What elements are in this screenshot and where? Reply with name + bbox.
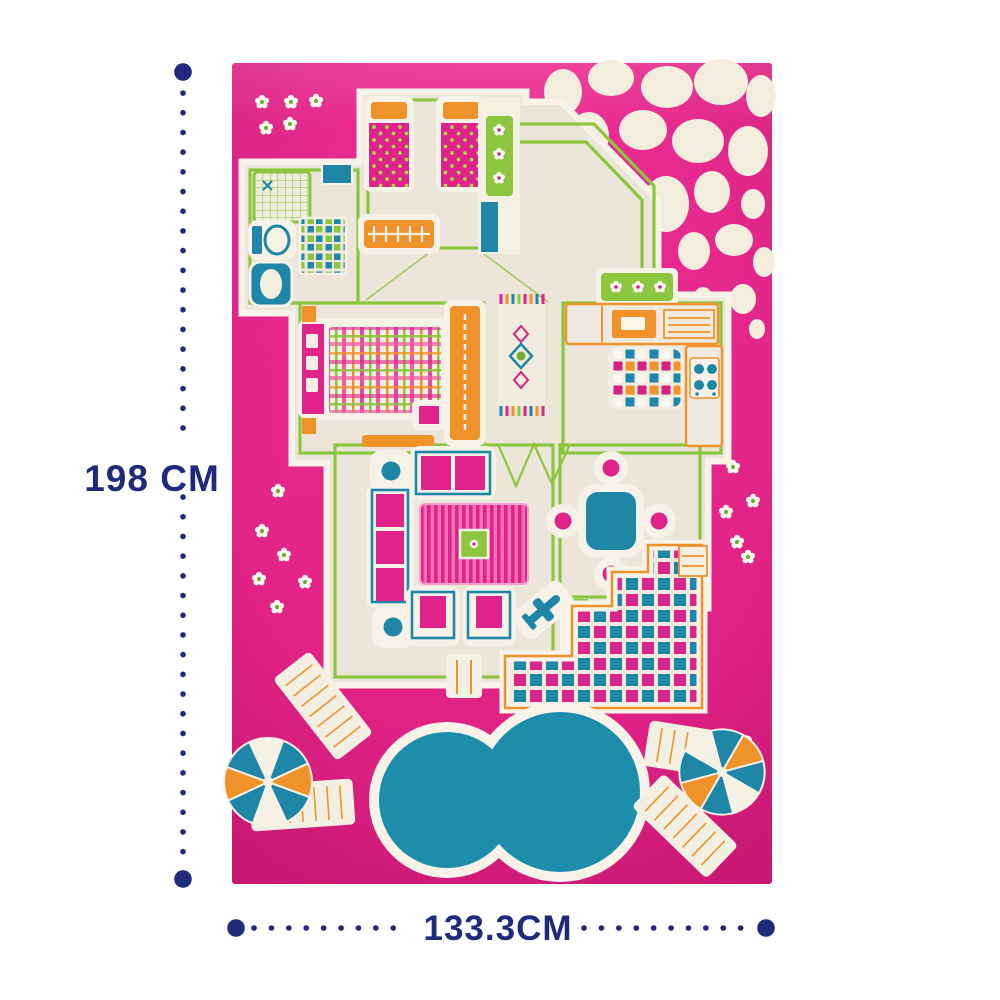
scene: 198 CM 133.3CM	[0, 0, 1000, 1000]
kitchen-rug	[610, 348, 682, 408]
width-measure: 133.3CM	[227, 909, 775, 948]
bench	[358, 214, 440, 254]
stool	[412, 400, 446, 430]
dining-chair	[555, 513, 572, 530]
teal-door	[481, 202, 498, 252]
width-label: 133.3CM	[423, 909, 572, 948]
kids-bedroom	[358, 96, 520, 254]
height-label: 198 CM	[84, 458, 220, 499]
product-dimension-image: 198 CM 133.3CM	[0, 0, 1000, 1000]
bathtub	[250, 262, 292, 306]
living-rug	[420, 504, 528, 584]
sofa	[366, 484, 414, 608]
measure-endpoint-dot	[174, 63, 192, 81]
patio-step-mat	[679, 546, 707, 576]
radiator	[362, 435, 434, 447]
play-house-rug	[212, 59, 776, 884]
window	[322, 164, 352, 184]
bath-mat	[300, 218, 346, 274]
loveseat	[410, 446, 496, 500]
height-measure: 198 CM	[84, 63, 220, 888]
shower	[254, 172, 310, 222]
wardrobe	[444, 300, 486, 446]
measure-endpoint-dot	[227, 919, 245, 937]
measure-endpoint-dot	[174, 870, 192, 888]
doorstep	[446, 654, 482, 698]
armchair-right	[462, 586, 516, 646]
toilet	[248, 220, 296, 260]
garden-door	[596, 268, 678, 306]
bed-left	[364, 96, 414, 192]
armchair-left	[406, 586, 460, 646]
measure-endpoint-dot	[757, 919, 775, 937]
hallway-runner-rug	[496, 294, 546, 416]
dining-chair	[651, 513, 668, 530]
dining-chair	[603, 460, 620, 477]
dining-table	[586, 492, 636, 550]
closet-flower-strip	[478, 98, 520, 254]
stove	[690, 358, 719, 398]
